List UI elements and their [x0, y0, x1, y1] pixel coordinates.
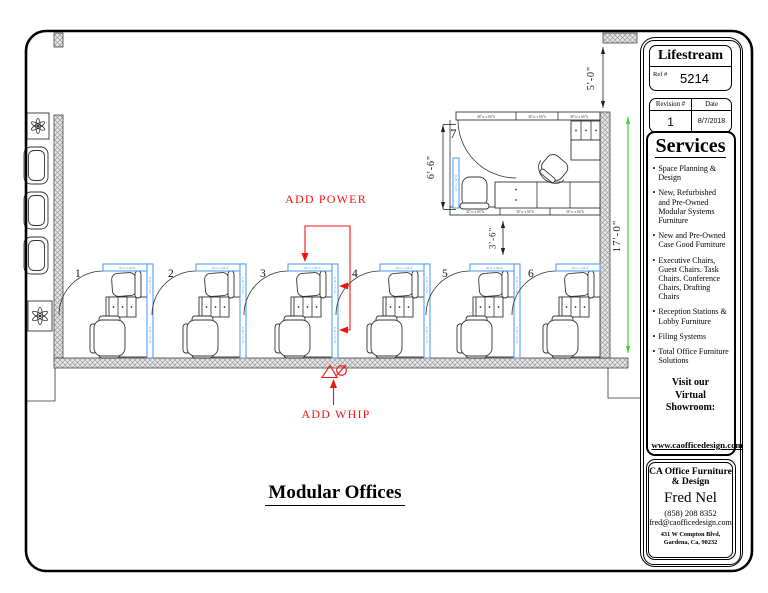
- cubicle-group: 36"w x 66"h36"w x 66"h36"w x 66"h2: [152, 264, 246, 358]
- ref-row: Ref # 5214: [650, 67, 731, 90]
- date-header: Date: [692, 99, 731, 111]
- cubicle-group: 36"w x 66"h36"w x 66"h36"w x 66"h1: [59, 264, 153, 358]
- contact-name: Fred Nel: [649, 490, 732, 507]
- lounge-chair: [24, 192, 48, 229]
- panel-size-label: 48"w x 66"h: [477, 115, 495, 119]
- revision-box: Revision # Date 1 8/7/2018: [649, 98, 732, 133]
- panel-size-label: 36"w x 66"h: [304, 266, 321, 270]
- client-box: Lifestream Ref # 5214: [649, 45, 732, 91]
- revision-number: 1: [650, 111, 692, 132]
- lounge-chair: [24, 147, 48, 184]
- panel-size-label: 36"w x 66"h: [148, 276, 152, 293]
- service-item: •Space Planning & Design: [652, 164, 730, 182]
- services-list: •Space Planning & Design•New, Refurbishe…: [652, 164, 730, 365]
- panel-size-label: 36"w x 66"h: [566, 210, 584, 214]
- service-item: •New and Pre-Owned Case Good Furniture: [652, 231, 730, 249]
- service-item: •New, Refurbished and Pre-Owned Modular …: [652, 188, 730, 225]
- door-swing-arc: [152, 271, 196, 315]
- private-office: 7 48"w x 66"h 36"w x 66"h 36"w x 66"h 42…: [450, 112, 600, 215]
- task-chair: [94, 320, 125, 356]
- page-title: Modular Offices: [225, 482, 445, 504]
- cubicle-number: 1: [75, 268, 81, 280]
- left-lobby-furniture: [24, 113, 52, 331]
- cubicle-group: 36"w x 66"h36"w x 66"h36"w x 66"h3: [244, 264, 338, 358]
- dimension-17-0: 17'-0": [611, 220, 623, 253]
- wall-outline-left: [27, 368, 55, 401]
- panel-size-label: 36"w x 66"h: [515, 276, 519, 293]
- company-address: 431 W Compton Blvd, Gardena, Ca, 90232: [649, 531, 732, 548]
- panel-size-label: 36"w x 66"h: [515, 326, 519, 343]
- panel-size-label: 36"w x 66"h: [396, 266, 413, 270]
- title-block: Lifestream Ref # 5214 Revision # Date 1 …: [640, 37, 743, 567]
- panel-size-label: 36"w x 66"h: [241, 276, 245, 293]
- guest-chair: [204, 272, 230, 297]
- ref-label: Ref #: [653, 71, 667, 78]
- service-item: •Reception Stations & Lobby Furniture: [652, 307, 730, 325]
- office-desk: [495, 182, 600, 208]
- guest-chair: [478, 272, 504, 297]
- guest-chair: [296, 272, 322, 297]
- wall-outline-right: [608, 368, 641, 398]
- office-guest-chair: [460, 177, 489, 209]
- guest-chair: [388, 272, 414, 297]
- cubicle-row: 36"w x 66"h36"w x 66"h36"w x 66"h136"w x…: [59, 264, 600, 358]
- task-chair: [547, 320, 578, 356]
- dimension-6-6: 6'-6": [426, 155, 437, 179]
- company-name: CA Office Furniture & Design: [649, 467, 732, 489]
- service-item: •Executive Chairs, Guest Chairs. Task Ch…: [652, 256, 730, 302]
- wall-right: [600, 112, 610, 358]
- guest-chair: [111, 272, 137, 297]
- door-swing-arc: [458, 120, 516, 178]
- cubicle-number: 6: [528, 268, 534, 280]
- add-whip-label: ADD WHIP: [301, 407, 370, 421]
- lounge-chair: [24, 237, 48, 274]
- panel-size-label: 36"w x 66"h: [241, 326, 245, 343]
- wall-top-left-stub: [54, 33, 63, 47]
- guest-chair: [564, 272, 590, 297]
- cubicle-number: 5: [442, 268, 448, 280]
- cubicle-number: 3: [260, 268, 266, 280]
- drawing-sheet: 7 48"w x 66"h 36"w x 66"h 36"w x 66"h 42…: [0, 0, 768, 593]
- panel-size-label: 36"w x 66"h: [572, 266, 589, 270]
- cubicle-group: 36"w x 66"h36"w x 66"h36"w x 66"h5: [426, 264, 520, 358]
- website-link: www.caofficedesign.com: [652, 440, 730, 450]
- panel-size-label: 36"w x 66"h: [486, 266, 503, 270]
- panel-size-label: 36"w x 66"h: [425, 276, 429, 293]
- cubicle-group: 36"w x 66"h6: [512, 264, 600, 358]
- service-item: •Total Office Furniture Solutions: [652, 347, 730, 365]
- cubicle-number: 2: [168, 268, 174, 280]
- dimension-5-0: 5'-0": [586, 66, 597, 90]
- dimension-3-6: 3'-6": [488, 227, 498, 249]
- wall-left: [54, 115, 63, 358]
- wall-bottom: [54, 358, 628, 368]
- company-box: CA Office Furniture & Design Fred Nel (8…: [646, 459, 736, 560]
- add-whip-annotation: ADD WHIP: [301, 365, 370, 421]
- door-swing-arc: [426, 271, 470, 315]
- add-power-label: ADD POWER: [285, 192, 367, 206]
- company-box-inner: CA Office Furniture & Design Fred Nel (8…: [648, 462, 733, 558]
- panel-size-label: 36"w x 66"h: [333, 326, 337, 343]
- door-swing-arc: [244, 271, 288, 315]
- contact-email: fred@caofficedesign.com: [649, 518, 732, 527]
- panel-size-label: 36"w x 66"h: [148, 326, 152, 343]
- service-item: •Filing Systems: [652, 332, 730, 341]
- panel-size-label: 36"w x 66"h: [516, 210, 534, 214]
- panel-size-label: 42"w x 66"h: [466, 210, 484, 214]
- panel-size-label: 36"w x 66"h: [528, 115, 546, 119]
- cubicle-number: 4: [352, 268, 358, 280]
- panel-size-label: 36"w x 66"h: [454, 174, 458, 191]
- ref-number: 5214: [680, 71, 709, 86]
- services-box: Services •Space Planning & Design•New, R…: [646, 131, 736, 456]
- task-chair: [461, 320, 492, 356]
- panel-size-label: 36"w x 66"h: [333, 276, 337, 293]
- client-name: Lifestream: [650, 46, 731, 67]
- office-number: 7: [450, 126, 457, 141]
- task-chair: [371, 320, 402, 356]
- revision-date: 8/7/2018: [692, 111, 731, 132]
- panel-size-label: 36"w x 66"h: [425, 326, 429, 343]
- plant-icon: [28, 301, 52, 331]
- panel-size-label: 36"w x 66"h: [212, 266, 229, 270]
- panel-size-label: 36"w x 66"h: [119, 266, 136, 270]
- revision-header: Revision #: [650, 99, 692, 111]
- panel-size-label: 36"w x 66"h: [570, 115, 588, 119]
- plant-icon: [27, 113, 49, 139]
- door-swing-arc: [59, 271, 103, 315]
- task-chair: [187, 320, 218, 356]
- door-swing-arc: [336, 271, 380, 315]
- wall-top-right: [603, 33, 637, 43]
- showroom-note: Visit our Virtual Showroom:: [652, 377, 730, 415]
- contact-phone: (858) 208 8352: [649, 508, 732, 518]
- services-heading: Services: [655, 136, 727, 158]
- task-chair: [279, 320, 310, 356]
- shelf: [571, 140, 600, 160]
